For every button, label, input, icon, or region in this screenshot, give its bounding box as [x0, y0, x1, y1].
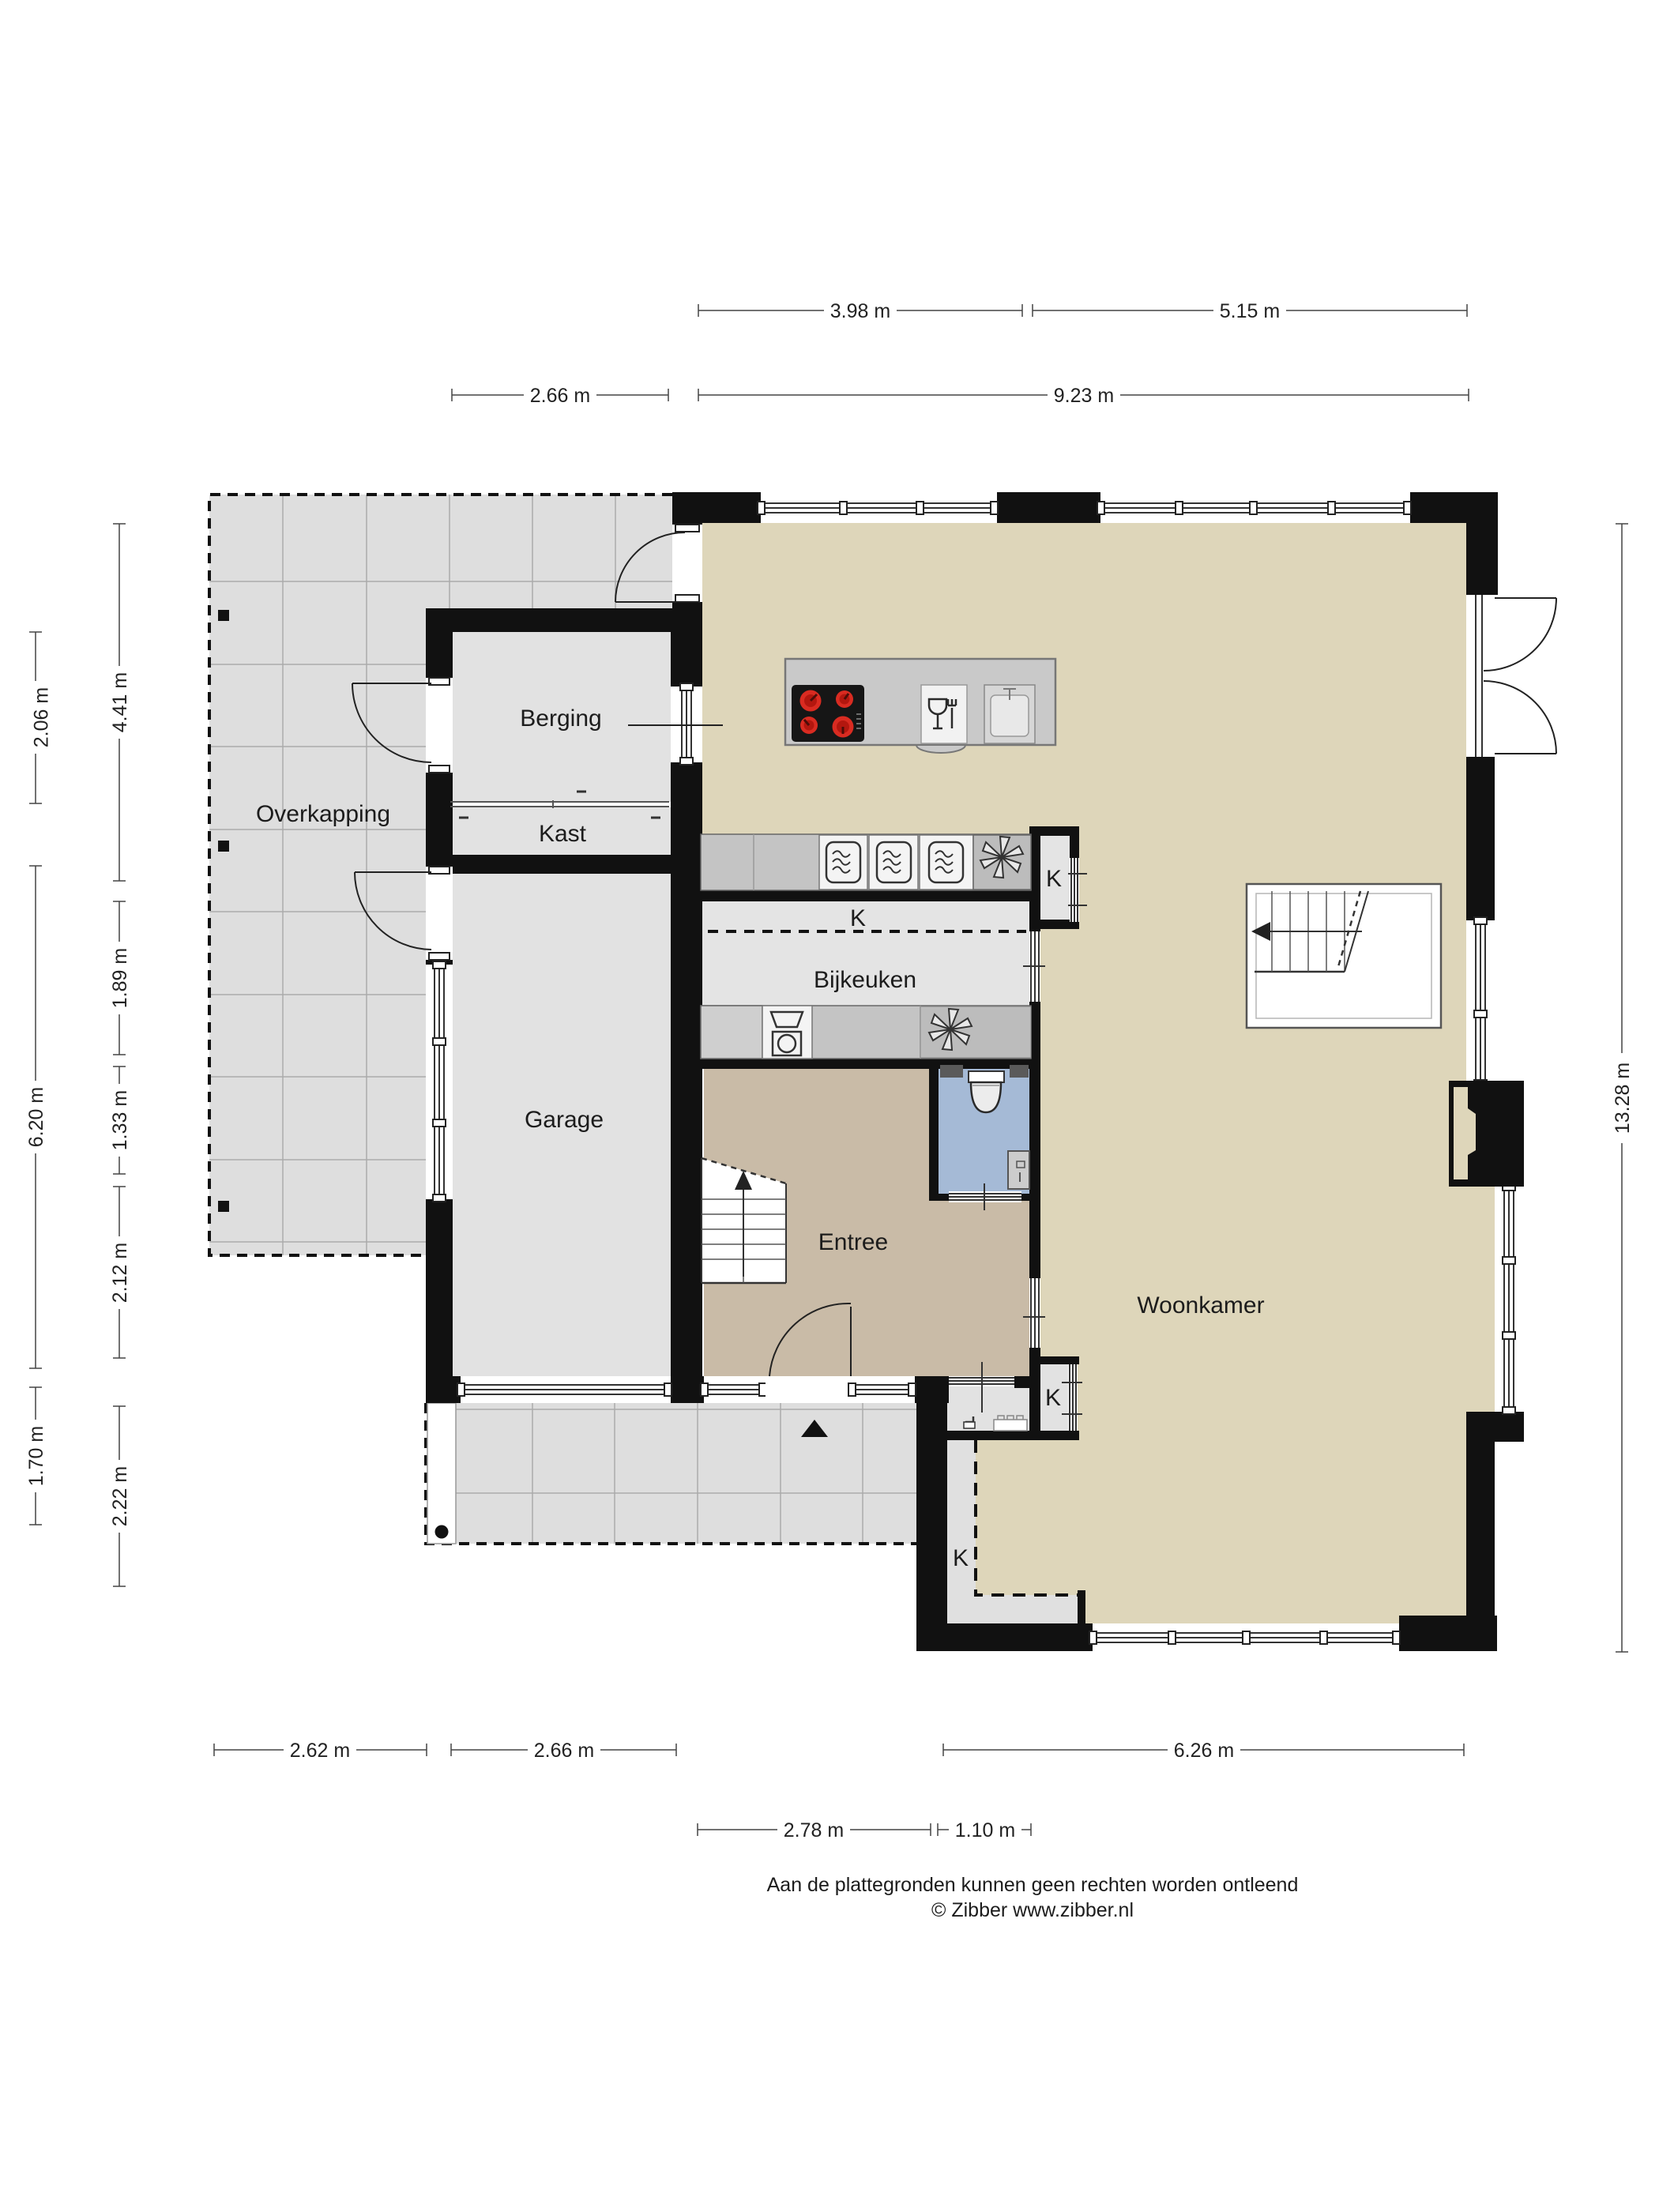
svg-text:Entree: Entree: [818, 1229, 888, 1255]
svg-text:6.26 m: 6.26 m: [1174, 1740, 1234, 1762]
svg-text:© Zibber www.zibber.nl: © Zibber www.zibber.nl: [931, 1899, 1134, 1921]
svg-text:Kast: Kast: [539, 821, 587, 847]
svg-text:2.66 m: 2.66 m: [530, 385, 590, 407]
svg-text:Garage: Garage: [525, 1107, 604, 1133]
svg-text:Aan de plattegronden kunnen ge: Aan de plattegronden kunnen geen rechten…: [767, 1874, 1299, 1896]
svg-text:9.23 m: 9.23 m: [1054, 385, 1114, 407]
svg-text:6.20 m: 6.20 m: [25, 1087, 47, 1147]
svg-text:K: K: [1045, 1385, 1061, 1411]
svg-text:K: K: [953, 1545, 969, 1571]
svg-text:1.33 m: 1.33 m: [109, 1090, 131, 1150]
svg-text:4.41 m: 4.41 m: [109, 672, 131, 732]
svg-text:K: K: [850, 905, 866, 931]
svg-text:5.15 m: 5.15 m: [1220, 300, 1280, 322]
svg-text:2.06 m: 2.06 m: [31, 687, 53, 747]
svg-text:3.98 m: 3.98 m: [830, 300, 890, 322]
svg-text:Woonkamer: Woonkamer: [1137, 1292, 1264, 1319]
svg-text:Overkapping: Overkapping: [256, 801, 390, 827]
svg-text:1.89 m: 1.89 m: [109, 948, 131, 1008]
svg-text:13.28 m: 13.28 m: [1612, 1063, 1634, 1134]
svg-text:2.78 m: 2.78 m: [784, 1819, 844, 1841]
svg-text:2.66 m: 2.66 m: [534, 1740, 594, 1762]
svg-text:Bijkeuken: Bijkeuken: [814, 967, 916, 993]
svg-text:2.12 m: 2.12 m: [109, 1243, 131, 1303]
svg-text:2.22 m: 2.22 m: [109, 1466, 131, 1526]
svg-text:Berging: Berging: [520, 705, 601, 732]
svg-text:K: K: [1046, 866, 1062, 892]
svg-text:2.62 m: 2.62 m: [290, 1740, 350, 1762]
svg-text:1.70 m: 1.70 m: [25, 1426, 47, 1486]
svg-text:1.10 m: 1.10 m: [955, 1819, 1015, 1841]
